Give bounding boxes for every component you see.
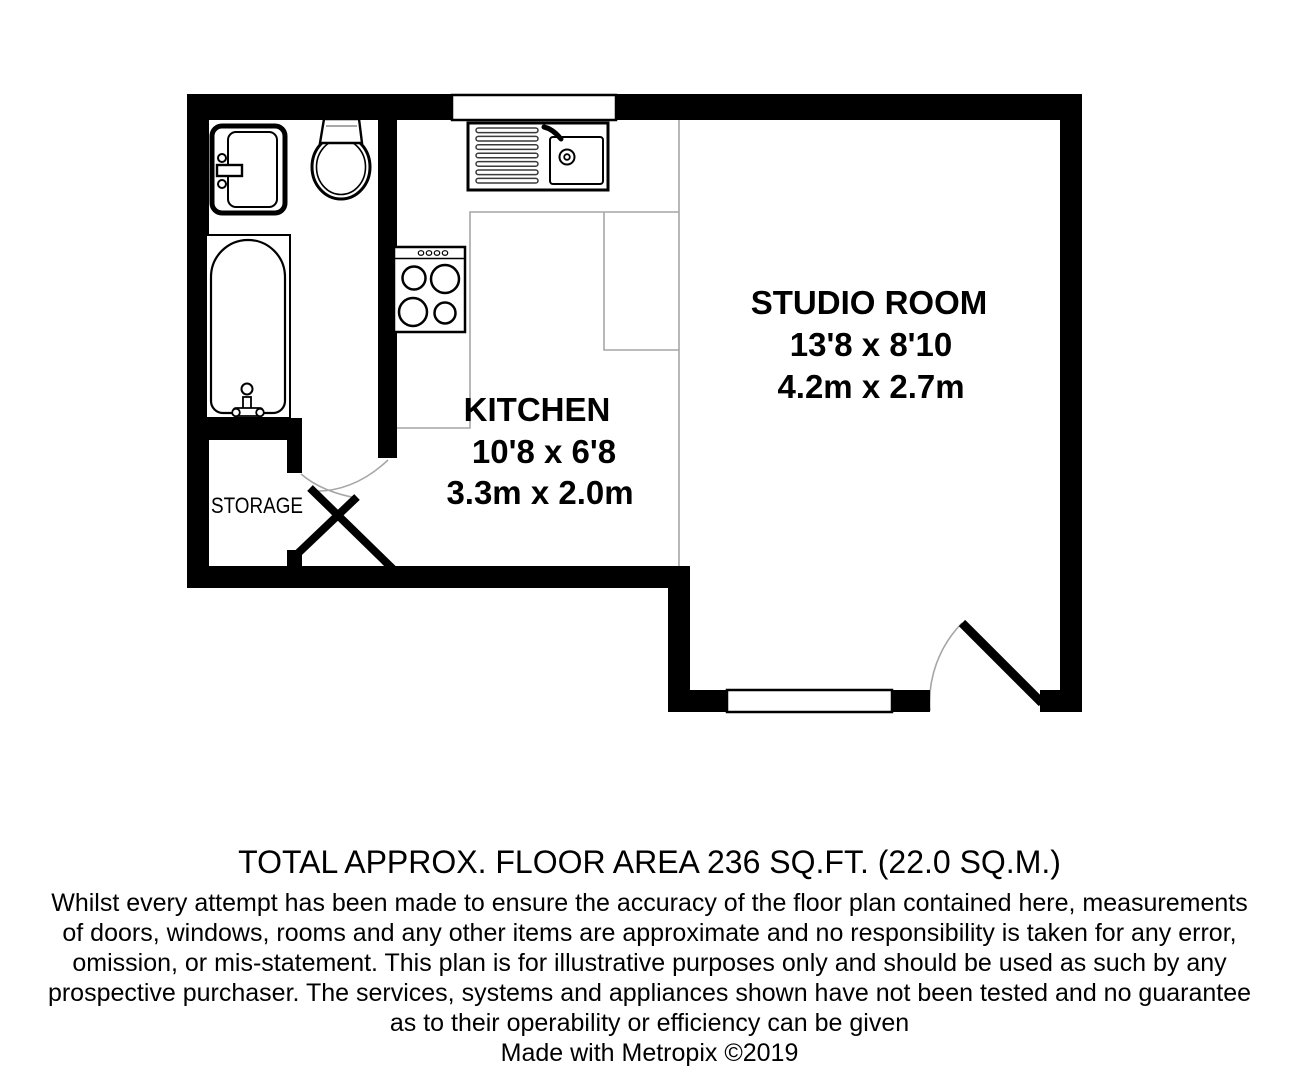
hob: [394, 247, 465, 332]
bathtub-drain: [242, 384, 253, 395]
window-kitchen-top: [452, 95, 616, 120]
wall-bottom-kitchen: [187, 566, 690, 588]
wall-right: [1060, 94, 1082, 712]
toilet-cistern: [320, 119, 362, 143]
studio-room-label: STUDIO ROOM: [751, 284, 988, 321]
sink-tap-knob-top: [218, 154, 226, 162]
entry-door-swing-arc: [930, 623, 962, 711]
disclaimer-block: Whilst every attempt has been made to en…: [0, 888, 1299, 1068]
disclaimer-line: omission, or mis-statement. This plan is…: [0, 948, 1299, 978]
storage-label: STORAGE: [211, 493, 303, 518]
wall-bottom-studio-left: [668, 690, 727, 712]
sink-tap: [217, 165, 242, 176]
floorplan-drawing: STUDIO ROOM 13'8 x 8'10 4.2m x 2.7m KITC…: [0, 0, 1299, 830]
total-area-heading: TOTAL APPROX. FLOOR AREA 236 SQ.FT. (22.…: [0, 843, 1299, 881]
window-studio-bottom: [727, 690, 892, 712]
kitchen-sink: [468, 123, 608, 190]
disclaimer-line: as to their operability or efficiency ca…: [0, 1008, 1299, 1038]
disclaimer-line: of doors, windows, rooms and any other i…: [0, 918, 1299, 948]
sink-drain-inner: [564, 154, 570, 160]
disclaimer-line: prospective purchaser. The services, sys…: [0, 978, 1299, 1008]
studio-room-dims-imperial: 13'8 x 8'10: [790, 326, 953, 363]
disclaimer-line: Whilst every attempt has been made to en…: [0, 888, 1299, 918]
wall-bottom-studio-mid: [892, 690, 930, 712]
kitchen-label: KITCHEN: [464, 391, 611, 428]
studio-room-dims-metric: 4.2m x 2.7m: [777, 368, 964, 405]
kitchen-dims-imperial: 10'8 x 6'8: [472, 433, 616, 470]
kitchen-dims-metric: 3.3m x 2.0m: [446, 474, 633, 511]
storage-door-x: [293, 488, 396, 572]
entry-door-leaf: [962, 623, 1042, 703]
wall-bathroom-bottom: [187, 418, 302, 440]
sink-basin: [550, 137, 603, 184]
drainer-bars: [476, 128, 538, 183]
metropix-credit: Made with Metropix ©2019: [0, 1038, 1299, 1068]
wall-storage-stub-upper: [287, 440, 302, 473]
bathtub: [206, 235, 290, 418]
bathroom-sink: [212, 126, 285, 213]
wall-top: [187, 94, 1082, 120]
sink-tap-knob-bottom: [218, 180, 226, 188]
floorplan-page: STUDIO ROOM 13'8 x 8'10 4.2m x 2.7m KITC…: [0, 0, 1299, 1080]
toilet: [312, 119, 370, 199]
